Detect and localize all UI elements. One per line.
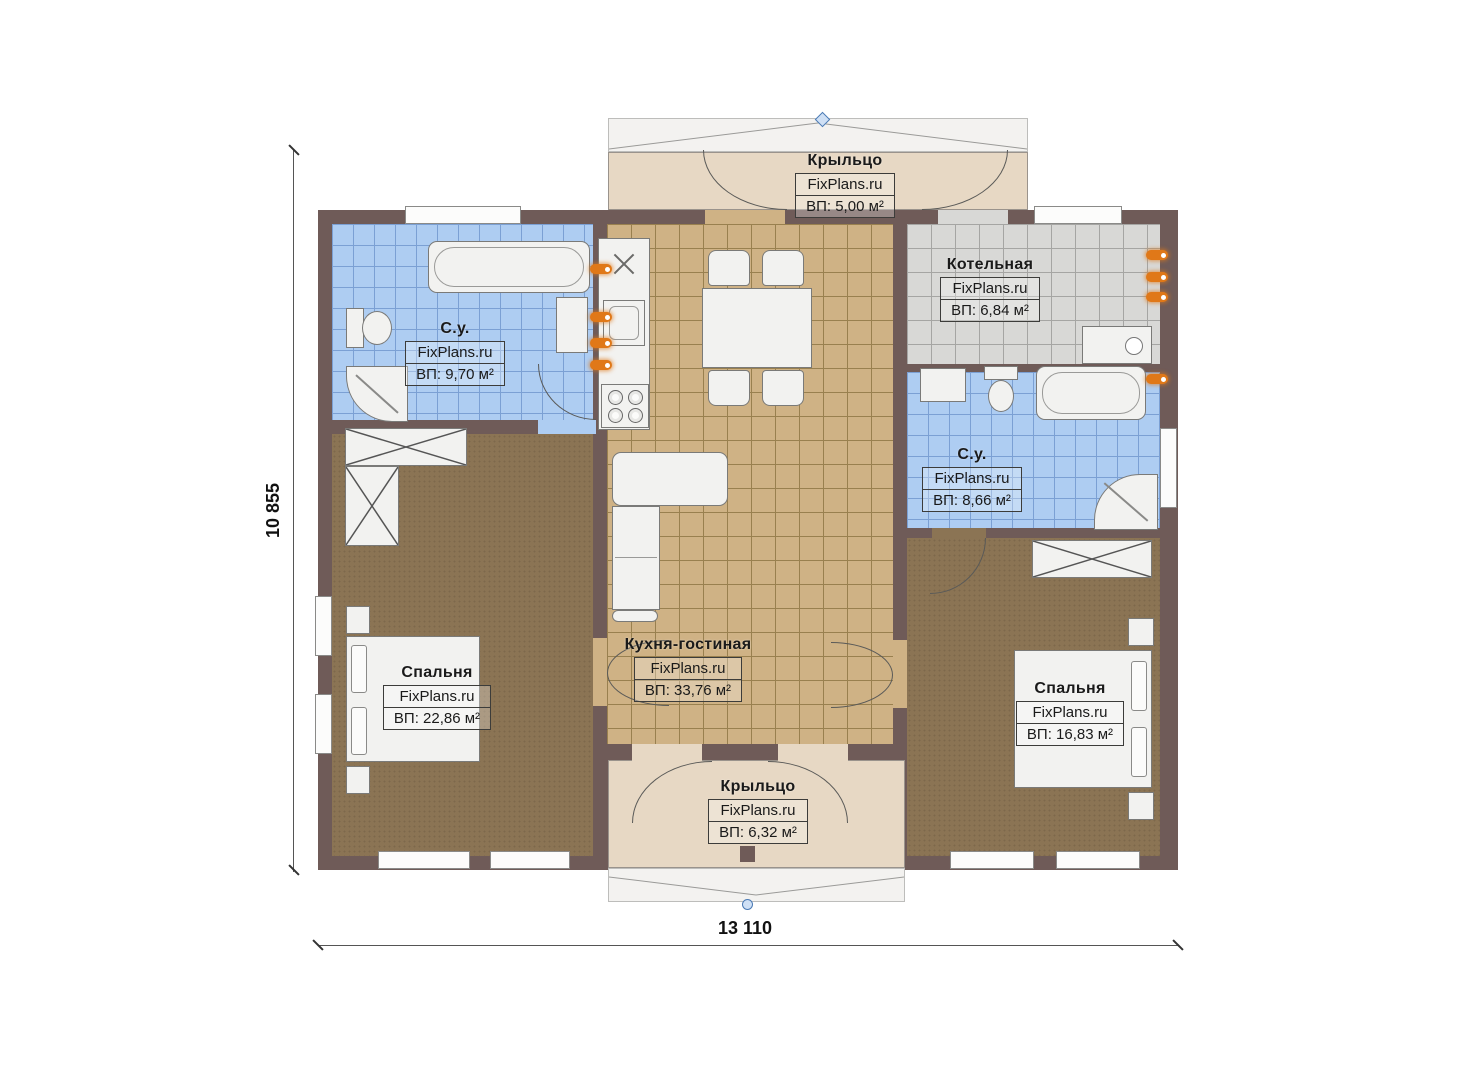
room-watermark: FixPlans.ru	[406, 342, 504, 364]
roof-ridge-lines	[609, 869, 904, 901]
sofa-chaise	[612, 452, 728, 506]
nightstand	[346, 766, 370, 794]
room-area: ВП: 6,32 м²	[709, 822, 807, 843]
roof-ridge-lines	[609, 119, 1027, 151]
dimension-label-height: 10 855	[263, 483, 284, 538]
room-title: С.у.	[440, 320, 469, 338]
entry-marker	[742, 899, 753, 910]
radiator-icon	[1146, 374, 1168, 384]
door-opening	[893, 640, 907, 708]
room-title: Крыльцо	[808, 152, 883, 170]
toilet-bowl	[988, 380, 1014, 412]
stove	[601, 384, 649, 428]
radiator-icon	[590, 360, 612, 370]
radiator-icon	[590, 312, 612, 322]
room-watermark: FixPlans.ru	[941, 278, 1039, 300]
dining-table	[702, 288, 812, 368]
radiator-icon	[1146, 272, 1168, 282]
wardrobe	[345, 428, 467, 466]
room-title: Крыльцо	[721, 778, 796, 796]
bathtub	[1036, 366, 1146, 420]
room-label-bath-right: С.у. FixPlans.ru ВП: 8,66 м²	[887, 446, 1057, 512]
room-area: ВП: 5,00 м²	[796, 196, 894, 217]
room-label-bedroom-left: Спальня FixPlans.ru ВП: 22,86 м²	[352, 664, 522, 730]
wardrobe	[1032, 540, 1152, 578]
nightstand	[346, 606, 370, 634]
door-opening	[932, 528, 986, 538]
room-area: ВП: 8,66 м²	[923, 490, 1021, 511]
sofa-armrest	[612, 610, 658, 622]
floor-plan: 10 855 13 110	[0, 0, 1474, 1080]
room-title: Котельная	[947, 256, 1033, 274]
room-watermark: FixPlans.ru	[635, 658, 741, 680]
nightstand	[1128, 618, 1154, 646]
room-area: ВП: 22,86 м²	[384, 708, 490, 729]
washbasin	[920, 368, 966, 402]
chair	[708, 370, 750, 406]
radiator-icon	[590, 338, 612, 348]
chair	[762, 250, 804, 286]
chair	[762, 370, 804, 406]
toilet	[984, 366, 1018, 380]
porch-bottom-roof	[608, 868, 905, 902]
room-area: ВП: 16,83 м²	[1017, 724, 1123, 745]
room-label-bath-left: С.у. FixPlans.ru ВП: 9,70 м²	[370, 320, 540, 386]
sofa	[612, 506, 660, 610]
washbasin	[556, 297, 588, 353]
room-area: ВП: 9,70 м²	[406, 364, 504, 385]
door-opening	[778, 744, 848, 761]
room-label-bedroom-right: Спальня FixPlans.ru ВП: 16,83 м²	[985, 680, 1155, 746]
window	[1034, 206, 1122, 224]
room-label-porch-top: Крыльцо FixPlans.ru ВП: 5,00 м²	[760, 152, 930, 218]
dimension-label-width: 13 110	[718, 918, 772, 939]
dimension-line-horizontal	[318, 945, 1178, 946]
room-watermark: FixPlans.ru	[1017, 702, 1123, 724]
radiator-icon	[590, 264, 612, 274]
porch-post	[740, 846, 755, 862]
wardrobe	[345, 466, 399, 546]
window	[315, 694, 332, 754]
room-title: Спальня	[401, 664, 472, 682]
room-area: ВП: 33,76 м²	[635, 680, 741, 701]
window	[315, 596, 332, 656]
room-watermark: FixPlans.ru	[923, 468, 1021, 490]
radiator-icon	[1146, 250, 1168, 260]
window	[1160, 428, 1177, 508]
dimension-line-vertical	[293, 150, 294, 872]
window	[950, 851, 1034, 869]
shower	[1094, 474, 1158, 530]
room-label-porch-bottom: Крыльцо FixPlans.ru ВП: 6,32 м²	[673, 778, 843, 844]
room-watermark: FixPlans.ru	[709, 800, 807, 822]
door-opening	[938, 210, 1008, 224]
door-opening	[538, 420, 596, 434]
room-label-boiler: Котельная FixPlans.ru ВП: 6,84 м²	[905, 256, 1075, 322]
chair	[708, 250, 750, 286]
radiator-icon	[1146, 292, 1168, 302]
door-opening	[632, 744, 702, 761]
boiler-unit	[1082, 326, 1152, 364]
dimension-tick	[288, 144, 299, 155]
room-area: ВП: 6,84 м²	[941, 300, 1039, 321]
nightstand	[1128, 792, 1154, 820]
room-title: Кухня-гостиная	[625, 636, 752, 654]
room-watermark: FixPlans.ru	[796, 174, 894, 196]
window	[378, 851, 470, 869]
room-watermark: FixPlans.ru	[384, 686, 490, 708]
room-label-kitchen-living: Кухня-гостиная FixPlans.ru ВП: 33,76 м²	[603, 636, 773, 702]
window	[1056, 851, 1140, 869]
bathtub	[428, 241, 590, 293]
window	[405, 206, 521, 224]
room-title: С.у.	[957, 446, 986, 464]
window	[490, 851, 570, 869]
room-title: Спальня	[1034, 680, 1105, 698]
kitchen-sink	[608, 248, 640, 280]
dimension-tick	[288, 864, 299, 875]
stove-burners	[605, 388, 645, 424]
